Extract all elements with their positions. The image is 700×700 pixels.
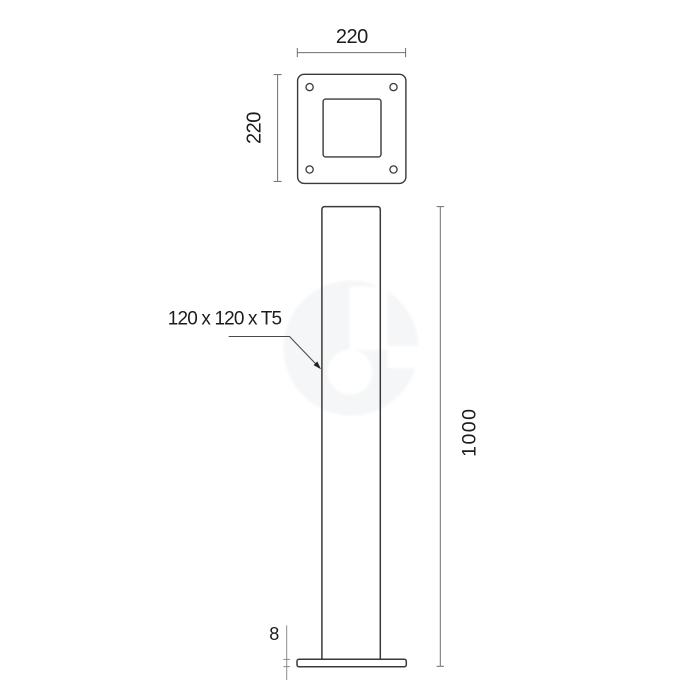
svg-text:220: 220: [336, 26, 368, 48]
svg-text:8: 8: [269, 624, 279, 644]
svg-text:220: 220: [243, 112, 265, 144]
svg-text:1000: 1000: [458, 408, 480, 457]
svg-text:120 x 120 x T5: 120 x 120 x T5: [168, 309, 282, 330]
